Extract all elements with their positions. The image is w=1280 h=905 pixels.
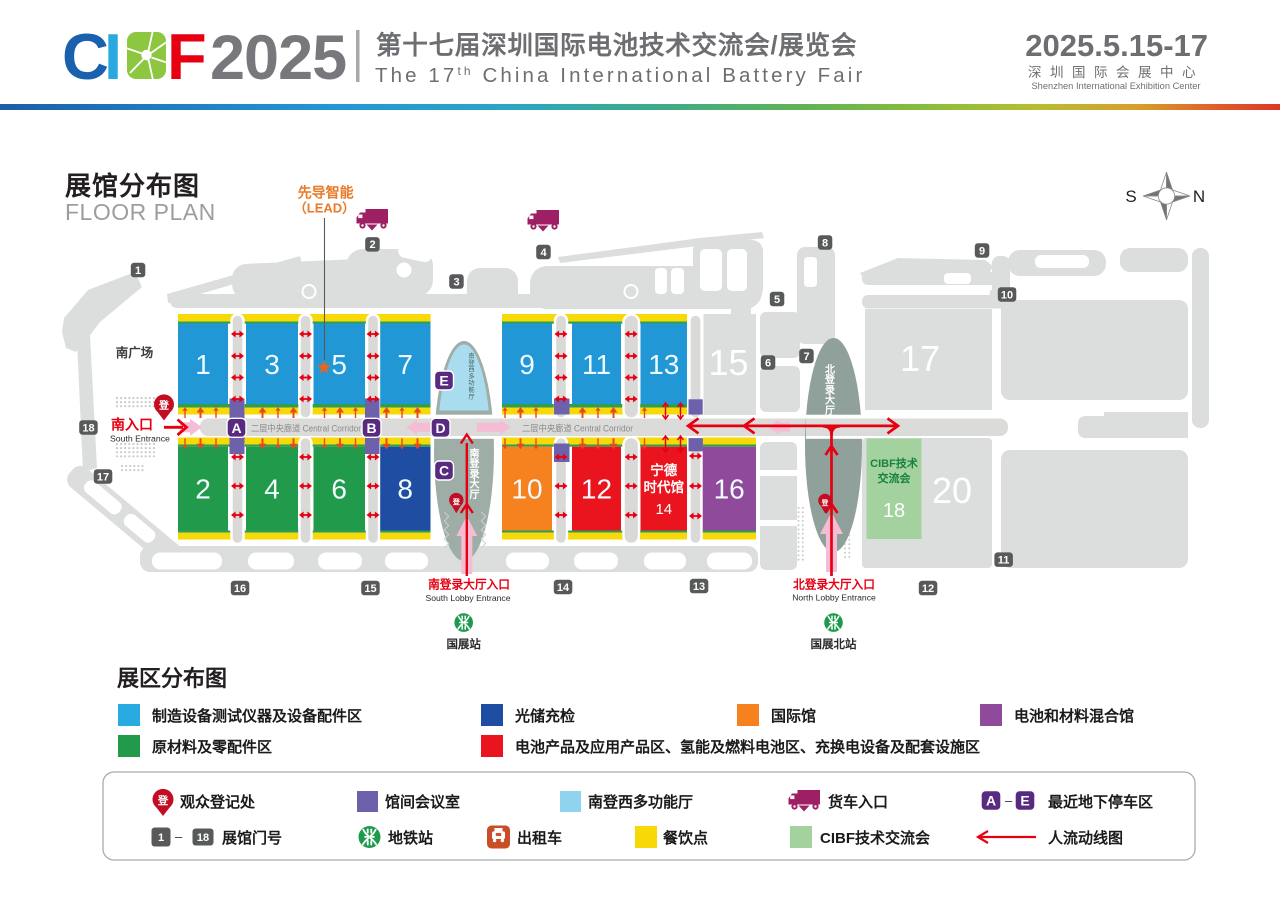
svg-text:South Lobby Entrance: South Lobby Entrance xyxy=(425,593,510,603)
svg-text:Shenzhen International Exhibit: Shenzhen International Exhibition Center xyxy=(1031,81,1200,91)
svg-text:15: 15 xyxy=(364,583,376,595)
svg-text:10: 10 xyxy=(511,474,542,505)
svg-text:E: E xyxy=(1020,793,1029,809)
svg-text:13: 13 xyxy=(648,349,679,380)
svg-text:原材料及零配件区: 原材料及零配件区 xyxy=(152,738,272,756)
svg-text:1: 1 xyxy=(195,349,211,380)
svg-text:2: 2 xyxy=(369,239,375,251)
svg-text:2025.5.15-17: 2025.5.15-17 xyxy=(1025,28,1208,63)
svg-text:出租车: 出租车 xyxy=(517,829,562,847)
svg-text:登: 登 xyxy=(469,457,481,470)
svg-text:15: 15 xyxy=(708,342,748,383)
svg-text:时代馆: 时代馆 xyxy=(644,479,685,495)
svg-text:餐饮点: 餐饮点 xyxy=(663,829,708,847)
svg-text:3: 3 xyxy=(264,349,280,380)
svg-text:厅: 厅 xyxy=(468,394,474,401)
svg-text:大: 大 xyxy=(470,478,480,491)
svg-text:12: 12 xyxy=(581,474,612,505)
svg-text:FLOOR PLAN: FLOOR PLAN xyxy=(65,199,216,225)
svg-text:6: 6 xyxy=(765,357,771,369)
svg-text:北: 北 xyxy=(825,363,835,376)
svg-text:7: 7 xyxy=(803,351,809,363)
svg-text:16: 16 xyxy=(234,583,246,595)
svg-text:4: 4 xyxy=(540,247,547,259)
svg-text:I: I xyxy=(104,20,122,93)
svg-text:18: 18 xyxy=(883,500,905,522)
svg-text:17: 17 xyxy=(900,338,940,379)
svg-text:8: 8 xyxy=(397,474,413,505)
svg-text:North Lobby Entrance: North Lobby Entrance xyxy=(792,593,876,603)
svg-text:功: 功 xyxy=(468,379,474,387)
svg-text:1: 1 xyxy=(158,832,164,844)
svg-text:南广场: 南广场 xyxy=(116,345,154,360)
svg-text:（LEAD）: （LEAD） xyxy=(294,201,355,216)
svg-text:南: 南 xyxy=(468,352,474,360)
svg-text:8: 8 xyxy=(822,237,828,249)
svg-text:第十七届深圳国际电池技术交流会/展览会: 第十七届深圳国际电池技术交流会/展览会 xyxy=(376,31,857,60)
svg-text:14: 14 xyxy=(557,582,570,594)
svg-text:展馆门号: 展馆门号 xyxy=(222,829,282,847)
svg-text:登: 登 xyxy=(824,373,836,386)
svg-text:F: F xyxy=(167,20,207,93)
svg-text:D: D xyxy=(435,420,445,436)
svg-text:深圳国际会展中心: 深圳国际会展中心 xyxy=(1028,65,1204,80)
svg-text:14: 14 xyxy=(655,501,672,518)
svg-text:A: A xyxy=(986,793,996,809)
svg-text:二层中央廊道 Central Corridor: 二层中央廊道 Central Corridor xyxy=(251,422,361,433)
svg-text:北登录大厅入口: 北登录大厅入口 xyxy=(793,578,875,592)
svg-text:厅: 厅 xyxy=(470,489,480,501)
svg-text:5: 5 xyxy=(331,349,347,380)
svg-text:电池产品及应用产品区、氢能及燃料电池区、充换电设备及配套设施: 电池产品及应用产品区、氢能及燃料电池区、充换电设备及配套设施区 xyxy=(515,738,980,756)
svg-text:宁德: 宁德 xyxy=(650,462,677,478)
svg-text:9: 9 xyxy=(519,349,535,380)
svg-text:多: 多 xyxy=(468,372,474,380)
svg-text:展馆分布图: 展馆分布图 xyxy=(65,171,200,201)
svg-text:–: – xyxy=(175,829,183,844)
svg-text:录: 录 xyxy=(825,384,835,396)
svg-text:13: 13 xyxy=(693,581,705,593)
svg-text:C: C xyxy=(439,463,449,479)
svg-text:能: 能 xyxy=(468,386,474,394)
svg-text:A: A xyxy=(231,420,241,436)
svg-text:18: 18 xyxy=(197,832,209,844)
svg-text:制造设备测试仪器及设备配件区: 制造设备测试仪器及设备配件区 xyxy=(152,707,362,725)
svg-text:大: 大 xyxy=(825,394,835,407)
svg-text:地铁站: 地铁站 xyxy=(388,829,433,847)
svg-text:馆间会议室: 馆间会议室 xyxy=(385,793,460,811)
svg-text:E: E xyxy=(439,373,448,389)
svg-text:国展北站: 国展北站 xyxy=(811,637,857,651)
svg-text:南: 南 xyxy=(470,447,480,460)
svg-text:交流会: 交流会 xyxy=(878,471,912,485)
svg-text:2: 2 xyxy=(195,474,211,505)
svg-text:南入口: 南入口 xyxy=(111,417,153,433)
svg-text:南登西多功能厅: 南登西多功能厅 xyxy=(588,793,693,811)
svg-text:登: 登 xyxy=(158,399,170,412)
svg-text:人流动线图: 人流动线图 xyxy=(1048,829,1123,847)
svg-text:最近地下停车区: 最近地下停车区 xyxy=(1048,793,1153,811)
svg-text:4: 4 xyxy=(264,474,280,505)
svg-text:国展站: 国展站 xyxy=(446,637,481,651)
svg-text:5: 5 xyxy=(774,294,780,306)
svg-text:货车入口: 货车入口 xyxy=(828,793,888,811)
svg-text:C: C xyxy=(62,20,109,93)
svg-text:登: 登 xyxy=(468,359,475,367)
svg-text:20: 20 xyxy=(932,470,972,511)
svg-text:观众登记处: 观众登记处 xyxy=(180,793,256,811)
svg-text:16: 16 xyxy=(714,474,745,505)
svg-text:登: 登 xyxy=(452,498,461,507)
svg-text:12: 12 xyxy=(922,583,934,595)
svg-text:7: 7 xyxy=(397,349,413,380)
svg-text:南登录大厅入口: 南登录大厅入口 xyxy=(428,578,510,592)
svg-text:11: 11 xyxy=(582,349,611,380)
svg-text:登: 登 xyxy=(821,498,829,507)
svg-text:10: 10 xyxy=(1001,289,1013,301)
svg-text:–: – xyxy=(1005,793,1013,808)
svg-text:9: 9 xyxy=(979,245,985,257)
svg-text:17: 17 xyxy=(97,471,109,483)
svg-text:二层中央廊道 Central Corridor: 二层中央廊道 Central Corridor xyxy=(522,422,633,433)
svg-text:South Entrance: South Entrance xyxy=(110,434,170,444)
svg-text:The 17th China International B: The 17th China International Battery Fai… xyxy=(375,64,865,87)
svg-text:厅: 厅 xyxy=(825,405,835,417)
svg-text:国际馆: 国际馆 xyxy=(771,707,816,725)
svg-text:录: 录 xyxy=(470,468,480,480)
svg-text:登: 登 xyxy=(157,794,169,807)
svg-text:CIBF技术: CIBF技术 xyxy=(870,456,918,470)
svg-text:光储充检: 光储充检 xyxy=(514,707,575,725)
svg-text:CIBF技术交流会: CIBF技术交流会 xyxy=(820,829,930,847)
svg-text:1: 1 xyxy=(135,265,141,277)
svg-text:11: 11 xyxy=(998,555,1010,567)
svg-text:6: 6 xyxy=(331,474,347,505)
svg-text:2025: 2025 xyxy=(210,23,346,93)
svg-text:B: B xyxy=(366,420,376,436)
svg-text:先导智能: 先导智能 xyxy=(298,185,354,201)
svg-text:18: 18 xyxy=(82,422,94,434)
svg-text:N: N xyxy=(1193,187,1205,206)
svg-text:S: S xyxy=(1125,187,1136,206)
svg-text:3: 3 xyxy=(453,276,459,288)
svg-text:电池和材料混合馆: 电池和材料混合馆 xyxy=(1014,707,1134,725)
